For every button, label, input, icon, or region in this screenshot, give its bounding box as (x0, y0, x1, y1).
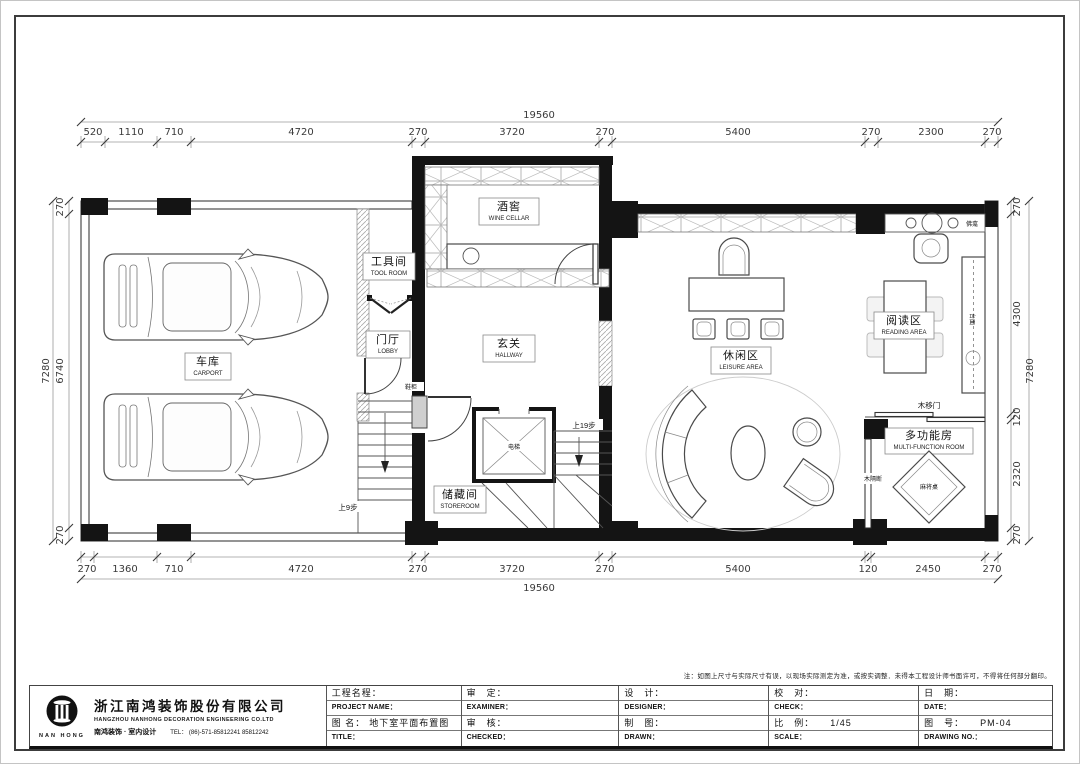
wine-rack (425, 185, 447, 269)
svg-text:LEISURE AREA: LEISURE AREA (719, 365, 762, 371)
svg-text:READING AREA: READING AREA (881, 330, 926, 336)
leisure-table (689, 278, 784, 311)
dim-total-top: 19560 (523, 110, 555, 121)
svg-text:工具间: 工具间 (371, 255, 407, 268)
dim-label: 6740 (55, 358, 66, 383)
title-block-col-design: 设 计： DESIGNER： 制 图： DRAWN： (619, 686, 769, 746)
dim-label: 270 (55, 197, 66, 216)
field-drawing-name-cn: 图 名：地下室平面布置图 (327, 716, 461, 731)
field-date-cn: 日 期： (919, 686, 1052, 701)
nanhong-logo-icon (42, 694, 82, 730)
dimension-left: 7280 270 6740 270 (41, 197, 73, 545)
dim-label: 120 (858, 564, 877, 575)
dim-label: 270 (408, 564, 427, 575)
title-block-col-project: 工程名程： PROJECT NAME： 图 名：地下室平面布置图 TITLE： (327, 686, 462, 746)
dim-label: 5400 (725, 564, 750, 575)
field-label: DRAWING NO.： (924, 734, 982, 741)
svg-text:TOOL ROOM: TOOL ROOM (371, 271, 407, 277)
dim-label: 1110 (118, 127, 143, 138)
room-label-storeroom: 储藏间 STOREROOM (434, 486, 486, 513)
svg-text:车库: 车库 (196, 354, 220, 368)
wine-cellar: 酒窖 WINE CELLAR (425, 167, 609, 287)
storeroom: 储藏间 STOREROOM (434, 483, 547, 528)
field-check-en: CHECK： (769, 701, 918, 716)
field-scale-en: SCALE： (769, 731, 918, 746)
svg-text:HALLWAY: HALLWAY (495, 353, 523, 359)
mahjong-table: 麻将桌 (893, 451, 965, 523)
field-label: 校 对： (774, 688, 814, 698)
field-label: DATE： (924, 704, 951, 711)
field-label: EXAMINER： (467, 704, 513, 711)
svg-text:MULTI-FUNCTION ROOM: MULTI-FUNCTION ROOM (894, 445, 965, 451)
svg-text:CARPORT: CARPORT (193, 371, 223, 377)
sliding-door-panel (875, 413, 933, 417)
field-label: 审 定： (467, 688, 507, 698)
field-value: 1/45 (830, 718, 852, 728)
dimension-top: 19560 520 1110 710 4720 270 3720 270 540… (77, 110, 1002, 148)
svg-text:酒窖: 酒窖 (497, 199, 521, 213)
field-label: CHECK： (774, 704, 807, 711)
lounge-chair (784, 459, 840, 513)
field-label: 工程名程： (332, 688, 382, 698)
dim-label: 270 (1012, 525, 1023, 544)
dim-label: 270 (595, 127, 614, 138)
wood-partition-label: 木隔断 (864, 475, 882, 483)
field-designer-en: DESIGNER： (619, 701, 768, 716)
dining-chair-arch (719, 238, 749, 275)
buddhist-niche-label: 佛龛 (966, 220, 978, 228)
field-checked-en: CHECKED： (462, 731, 619, 746)
svg-text:WINE CELLAR: WINE CELLAR (489, 216, 530, 222)
svg-text:储藏间: 储藏间 (442, 487, 478, 501)
dim-label: 3720 (499, 127, 524, 138)
dim-label: 270 (1012, 197, 1023, 216)
field-label: 比 例： (774, 718, 814, 728)
field-value: PM-04 (980, 718, 1012, 728)
tool-room: 工具间 TOOL ROOM (363, 253, 415, 313)
field-date-en: DATE： (919, 701, 1052, 716)
door-swing (428, 397, 471, 441)
field-drawing-no-cn: 图 号：PM-04 (919, 716, 1052, 731)
dim-label: 1360 (112, 564, 137, 575)
title-block-col-date: 日 期： DATE： 图 号：PM-04 DRAWING NO.： (919, 686, 1052, 746)
elevator: 电梯 (474, 405, 554, 481)
dim-label: 270 (982, 564, 1001, 575)
field-label: 图 名： (332, 718, 366, 728)
dim-label: 2450 (915, 564, 940, 575)
field-checked-cn: 审 核： (462, 716, 619, 731)
wine-rack (425, 167, 599, 185)
svg-text:LOBBY: LOBBY (378, 349, 398, 355)
dining-chair (761, 319, 783, 339)
revision-note: 注：如图上尺寸与实际尺寸有误，以现场实际测定为准，或按实调整．未得本工程设计师书… (684, 670, 1051, 680)
multi-function-room: 木移门 木隔断 多功能房 MULTI-FUNCTION ROOM 麻将桌 (853, 400, 985, 528)
dimension-bottom: 19560 270 1360 710 4720 270 3720 270 540… (77, 551, 1002, 594)
dim-label: 270 (77, 564, 96, 575)
drawing-sheet: 19560 520 1110 710 4720 270 3720 270 540… (0, 0, 1080, 764)
dim-label: 4720 (288, 127, 313, 138)
field-label: SCALE： (774, 734, 806, 741)
field-label: DRAWN： (624, 734, 659, 741)
reading-area: 阅读区 READING AREA (867, 234, 948, 373)
dim-label: 520 (83, 127, 102, 138)
cabinet-band (427, 269, 609, 287)
car-top-view (104, 389, 328, 485)
field-project-name-en: PROJECT NAME： (327, 701, 461, 716)
field-label: CHECKED： (467, 734, 510, 741)
title-block: NAN HONG 浙江南鸿装饰股份有限公司 HANGZHOU NANHONG D… (29, 685, 1053, 749)
field-drawing-name-en: TITLE： (327, 731, 461, 746)
room-label-leisure: 休闲区 LEISURE AREA (711, 347, 771, 374)
dim-label: 4720 (288, 564, 313, 575)
dim-label: 710 (164, 564, 183, 575)
field-drawn-cn: 制 图： (619, 716, 768, 731)
field-label: 制 图： (624, 718, 664, 728)
room-label-reading: 阅读区 READING AREA (874, 312, 934, 339)
field-value: 地下室平面布置图 (369, 718, 449, 728)
floor-plan: 19560 520 1110 710 4720 270 3720 270 540… (1, 1, 1080, 764)
svg-text:门厅: 门厅 (376, 332, 400, 346)
svg-text:STOREROOM: STOREROOM (440, 504, 479, 510)
dim-label: 270 (595, 564, 614, 575)
field-label: 设 计： (624, 688, 664, 698)
room-label-wine-cellar: 酒窖 WINE CELLAR (479, 198, 539, 225)
dim-total-bottom: 19560 (523, 583, 555, 594)
dim-label: 2300 (918, 127, 943, 138)
car-top-view (104, 249, 328, 345)
field-label: TITLE： (332, 734, 360, 741)
room-label-lobby: 门厅 LOBBY (366, 331, 410, 358)
dim-label: 710 (164, 127, 183, 138)
room-label-carport: 车库 CARPORT (185, 353, 231, 380)
logo-text: NAN HONG (30, 733, 94, 739)
company-cell: NAN HONG 浙江南鸿装饰股份有限公司 HANGZHOU NANHONG D… (30, 686, 327, 746)
shoe-cabinet-label: 鞋柜 (405, 383, 417, 391)
field-examine-en: EXAMINER： (462, 701, 619, 716)
stairs-left: 上9步 (333, 401, 412, 512)
door-swing (365, 358, 401, 394)
dim-label: 3720 (499, 564, 524, 575)
walls (81, 156, 998, 545)
dim-label: 2320 (1012, 461, 1023, 486)
field-project-name-cn: 工程名程： (327, 686, 461, 701)
field-scale-cn: 比 例：1/45 (769, 716, 918, 731)
dining-chair (693, 319, 715, 339)
dim-total-right: 7280 (1025, 358, 1036, 383)
shoe-cabinet (412, 396, 427, 428)
room-label-hallway: 玄关 HALLWAY (483, 335, 535, 362)
field-label: DESIGNER： (624, 704, 669, 711)
dim-label: 120 (1012, 407, 1023, 426)
curved-sofa (656, 386, 706, 522)
dimension-right: 7280 270 4300 120 2320 270 (1007, 197, 1036, 545)
field-label: 图 号： (924, 718, 964, 728)
dim-label: 270 (982, 127, 1001, 138)
column (864, 419, 888, 439)
dim-label: 270 (408, 127, 427, 138)
dim-total-left: 7280 (41, 358, 52, 383)
room-label-multi-function: 多功能房 MULTI-FUNCTION ROOM (885, 428, 973, 454)
title-block-col-check: 校 对： CHECK： 比 例：1/45 SCALE： (769, 686, 919, 746)
svg-text:玄关: 玄关 (497, 336, 521, 350)
field-check-cn: 校 对： (769, 686, 918, 701)
armchair (914, 234, 948, 263)
company-name-cn: 浙江南鸿装饰股份有限公司 (94, 695, 322, 715)
oval-coffee-table (731, 426, 765, 480)
company-name-en: HANGZHOU NANHONG DECORATION ENGINEERING … (94, 717, 322, 723)
counter-top: 台面 (962, 257, 985, 393)
svg-text:多功能房: 多功能房 (905, 428, 953, 442)
field-label: 审 核： (467, 718, 507, 728)
company-tel: TEL： (86)-571-85812241 85812242 (170, 727, 268, 736)
title-block-col-examine: 审 定： EXAMINER： 审 核： CHECKED： (462, 686, 620, 746)
wood-sliding-door-label: 木移门 (918, 400, 941, 410)
mahjong-table-label: 麻将桌 (920, 483, 938, 491)
dim-label: 5400 (725, 127, 750, 138)
svg-text:休闲区: 休闲区 (723, 348, 759, 362)
leisure-area: 休闲区 LEISURE AREA (646, 238, 840, 531)
up-19-steps-label: 上19步 (572, 421, 596, 430)
field-drawing-no-en: DRAWING NO.： (919, 731, 1052, 746)
room-label-tool-room: 工具间 TOOL ROOM (363, 253, 415, 280)
field-examine-cn: 审 定： (462, 686, 619, 701)
company-slogan: 南鸿装饰 · 室内设计 (94, 727, 156, 737)
dining-chair (727, 319, 749, 339)
carport: 车库 CARPORT (104, 249, 328, 485)
up-9-steps-label: 上9步 (338, 503, 358, 512)
sliding-door-panel (927, 418, 985, 422)
field-designer-cn: 设 计： (619, 686, 768, 701)
dim-label: 270 (55, 525, 66, 544)
field-label: PROJECT NAME： (332, 704, 397, 711)
svg-text:阅读区: 阅读区 (886, 313, 922, 327)
dim-label: 270 (861, 127, 880, 138)
dim-label: 4300 (1012, 301, 1023, 326)
round-stool (793, 418, 821, 446)
stair-direction-arrow (575, 455, 583, 467)
counter-top-label: 台面 (968, 313, 976, 325)
elevator-label: 电梯 (508, 443, 520, 451)
buddhist-niche: 佛龛 (885, 213, 985, 233)
field-label: 日 期： (924, 688, 964, 698)
field-drawn-en: DRAWN： (619, 731, 768, 746)
double-door (367, 295, 412, 313)
